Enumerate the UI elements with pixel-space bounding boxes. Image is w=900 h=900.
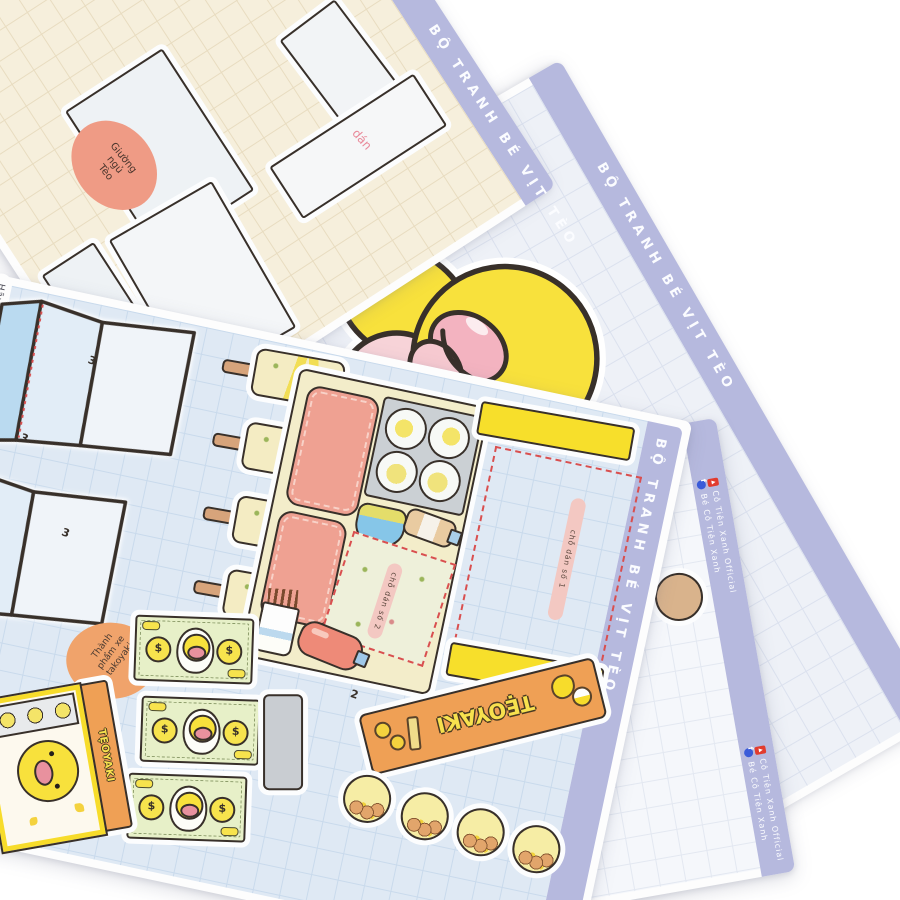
- toy-money-bill: $ $: [140, 696, 261, 766]
- preview-duck-bill: [32, 758, 55, 787]
- chopstick-cup: [253, 601, 301, 658]
- griddle-cell: [372, 447, 422, 497]
- sign-text: TẸOYAKI: [424, 687, 546, 739]
- bill-duck-portrait: [176, 627, 216, 674]
- product-photo-paper-craft-sheets: BỘ TRANH BÉ VỊT TÈO BỘ TRANH BÉ VỊT TÈO: [0, 0, 900, 900]
- counter-box-net: [0, 283, 202, 481]
- griddle-cell: [381, 404, 431, 454]
- glue-spot-1-label: chỗ dán số 1: [547, 497, 587, 621]
- glue-label: dán: [349, 126, 374, 152]
- preview-griddle: [0, 692, 79, 738]
- youtube-icon: [707, 477, 719, 487]
- gloss: [311, 627, 330, 639]
- pole-piece: [263, 694, 303, 790]
- youtube-icon: [754, 745, 766, 755]
- bill-duck-portrait: [182, 708, 222, 755]
- griddle-cell: [424, 413, 474, 463]
- griddle-cell: [415, 456, 465, 506]
- takoyaki-doodle: [388, 733, 407, 752]
- sparkle: [74, 802, 84, 812]
- facebook-icon: [743, 748, 753, 758]
- preview-duck-eye: [54, 783, 60, 789]
- preview-sign-text: TẸOYAKI: [96, 728, 116, 783]
- skewer-doodle: [406, 716, 421, 751]
- sparkle: [29, 817, 38, 826]
- bottle-cap: [446, 528, 463, 547]
- facebook-icon: [696, 480, 706, 490]
- toy-money-bill: $ $: [126, 773, 247, 843]
- toy-money-bill: $ $: [133, 615, 254, 685]
- preview-duck-head: [12, 735, 84, 807]
- ketchup-nozzle: [352, 649, 371, 668]
- bill-duck-portrait: [169, 785, 209, 832]
- takoyaki-griddle: [363, 396, 484, 517]
- glue-spot-2-label: chỗ dán số 2: [366, 562, 404, 641]
- awning-pad-piece: [284, 384, 382, 519]
- preview-duck-eye: [49, 751, 55, 757]
